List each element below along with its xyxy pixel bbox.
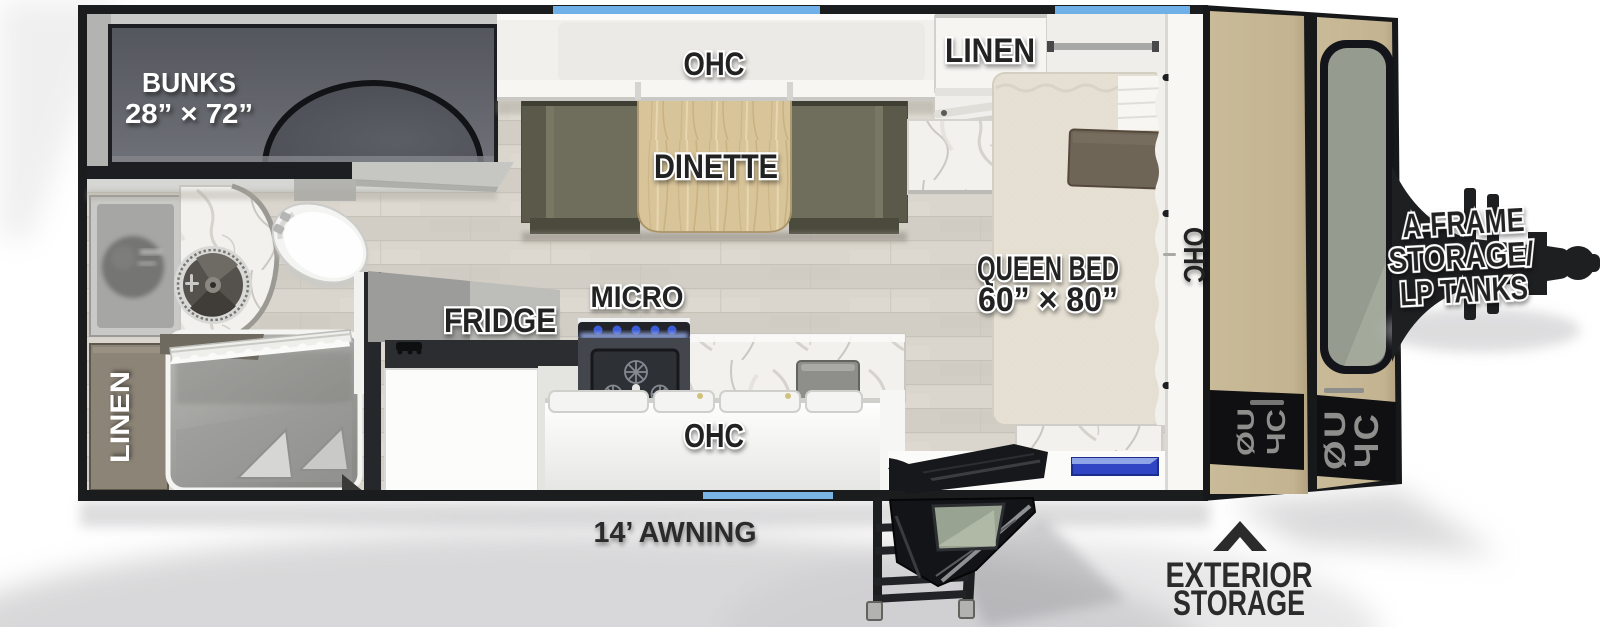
svg-text:60” × 80”: 60” × 80” bbox=[978, 281, 1118, 319]
svg-text:DINETTE: DINETTE bbox=[654, 148, 778, 186]
svg-text:28” × 72”: 28” × 72” bbox=[125, 98, 253, 129]
svg-text:ØU: ØU bbox=[1233, 408, 1260, 456]
svg-text:ØU: ØU bbox=[1319, 408, 1352, 470]
svg-text:OHC: OHC bbox=[1177, 227, 1210, 283]
svg-text:LP TANKS: LP TANKS bbox=[1399, 269, 1529, 313]
svg-text:STORAGE: STORAGE bbox=[1173, 584, 1305, 623]
svg-text:LINEN: LINEN bbox=[105, 371, 135, 463]
svg-text:OHC: OHC bbox=[684, 417, 744, 454]
svg-text:FRIDGE: FRIDGE bbox=[444, 302, 556, 340]
svg-text:MICRO: MICRO bbox=[591, 281, 684, 314]
svg-text:BUNKS: BUNKS bbox=[142, 67, 236, 98]
svg-text:ЧC: ЧC bbox=[1348, 412, 1386, 468]
svg-text:ЧC: ЧC bbox=[1261, 409, 1291, 455]
svg-text:14’ AWNING: 14’ AWNING bbox=[594, 517, 757, 549]
svg-text:OHC: OHC bbox=[684, 46, 745, 82]
svg-text:LINEN: LINEN bbox=[945, 32, 1035, 70]
